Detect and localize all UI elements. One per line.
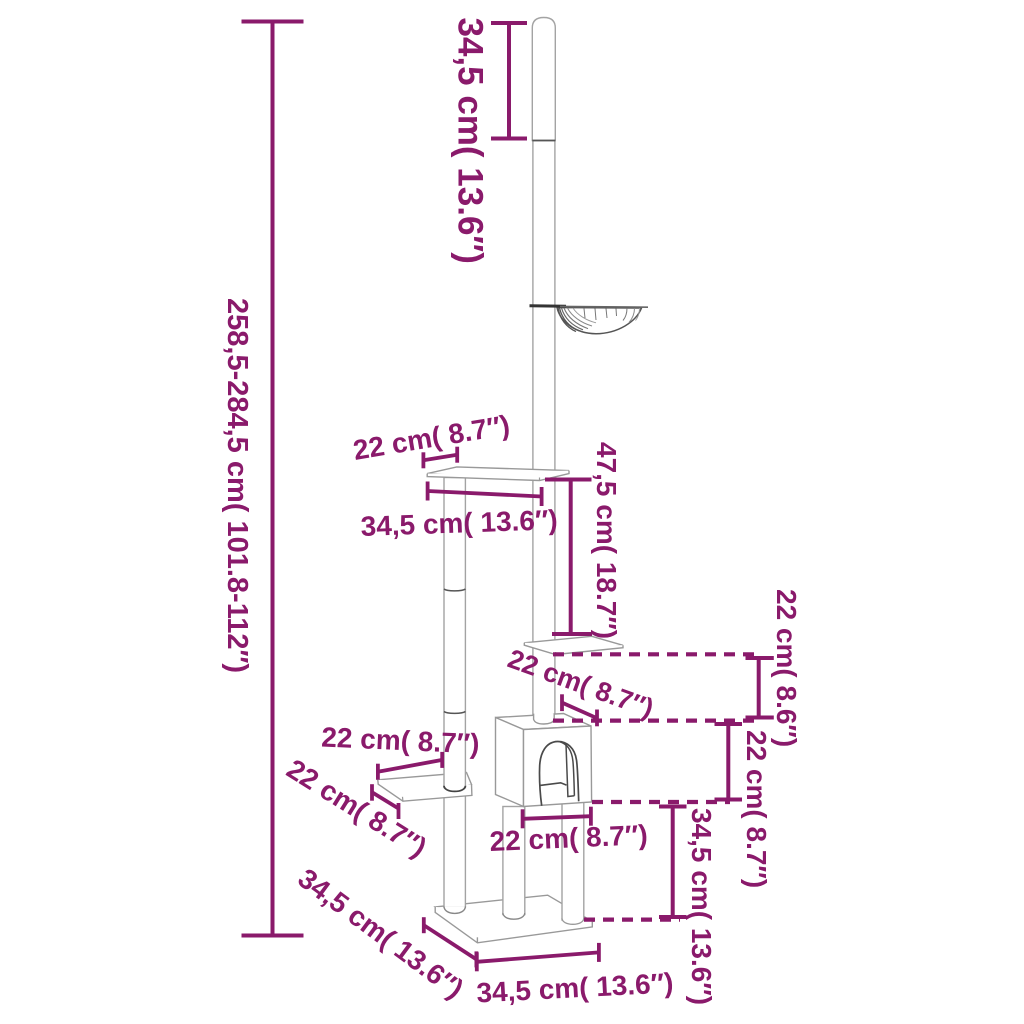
- svg-text:34,5 cm( 13.6″): 34,5 cm( 13.6″): [686, 808, 717, 1005]
- svg-text:47,5 cm( 18.7″): 47,5 cm( 18.7″): [591, 442, 622, 639]
- svg-text:22 cm( 8.6″): 22 cm( 8.6″): [771, 589, 802, 747]
- svg-text:34,5 cm( 13.6″): 34,5 cm( 13.6″): [451, 18, 490, 264]
- svg-text:258,5-284,5 cm( 101.8-112″): 258,5-284,5 cm( 101.8-112″): [221, 298, 253, 673]
- svg-text:22 cm( 8.7″): 22 cm( 8.7″): [741, 730, 772, 888]
